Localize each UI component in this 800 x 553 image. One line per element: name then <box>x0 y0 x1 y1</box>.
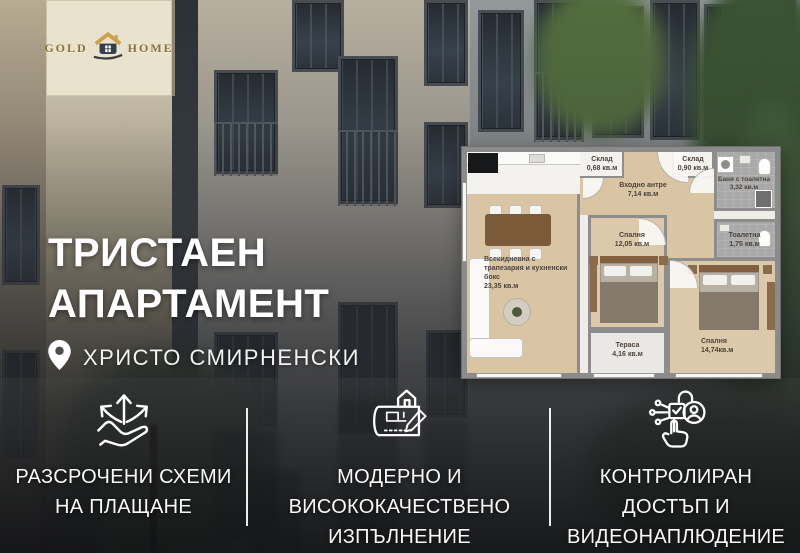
feature-quality-build: МОДЕРНО И ВИСОКОКАЧЕСТВЕНО ИЗПЪЛНЕНИЕ <box>247 384 552 552</box>
room-label-storage-2: Склад 0,90 кв.м <box>674 156 712 174</box>
dining-table <box>485 214 551 246</box>
nightstand <box>659 256 668 265</box>
room-label-toilet: Тоалетна 1,75 кв.м <box>717 232 772 250</box>
room-label-bathroom: Баня с тоалетна 3,32 кв.м <box>715 176 773 193</box>
feature-payment-plans: РАЗСРОЧЕНИ СХЕМИ НА ПЛАЩАНЕ <box>0 384 247 552</box>
floor-plan-interior: Всекидневна с трапезария и кухненски бок… <box>467 152 775 373</box>
hand-arrows-icon <box>88 384 160 456</box>
pillow <box>731 275 755 285</box>
poster: GOLD HOME ТРИСТАЕН АПАРТАМЕНТ <box>0 0 800 553</box>
page-title-line1: ТРИСТАЕН <box>48 228 360 279</box>
pillow <box>630 266 652 276</box>
pillow <box>604 266 626 276</box>
hero-title-block: ТРИСТАЕН АПАРТАМЕНТ ХРИСТО СМИРНЕНСКИ <box>48 228 360 375</box>
room-label-storage-1: Склад 0,68 кв.м <box>582 156 622 174</box>
access-control-icon <box>640 384 712 456</box>
window-strip <box>476 373 562 378</box>
blanket <box>600 282 658 323</box>
room-label-living: Всекидневна с трапезария и кухненски бок… <box>484 256 576 292</box>
blueprint-pencil-icon <box>364 384 436 456</box>
room-label-terrace: Тераса 4,16 кв.м <box>605 342 650 360</box>
floor-plan: Всекидневна с трапезария и кухненски бок… <box>462 147 780 378</box>
hall-corridor <box>667 215 714 258</box>
room-label-bedroom-2: Спалня 14,74кв.м <box>701 338 756 356</box>
sink-fixture <box>719 224 730 232</box>
feature-divider <box>549 408 551 526</box>
gold-home-house-icon <box>92 31 124 65</box>
shower <box>755 190 772 208</box>
room-label-bedroom-1: Спалня 12,05 кв.м <box>607 232 657 250</box>
cooktop <box>468 153 498 173</box>
location-row: ХРИСТО СМИРНЕНСКИ <box>48 340 360 375</box>
toilet-fixture <box>758 158 771 175</box>
bed-headboard <box>600 256 658 263</box>
feature-divider <box>246 408 248 526</box>
window-strip <box>462 182 467 262</box>
sink-fixture <box>739 155 751 164</box>
sofa <box>469 338 523 358</box>
window-strip <box>675 373 763 378</box>
brand-word-gold: GOLD <box>44 41 87 56</box>
feature-label: КОНТРОЛИРАН ДОСТЪП И ВИДЕОНАПЛЮДЕНИЕ <box>567 462 785 552</box>
feature-label: МОДЕРНО И ВИСОКОКАЧЕСТВЕНО ИЗПЪЛНЕНИЕ <box>289 462 511 552</box>
blanket <box>699 292 759 330</box>
wardrobe <box>767 282 775 330</box>
brand-word-home: HOME <box>128 41 174 56</box>
feature-label: РАЗСРОЧЕНИ СХЕМИ НА ПЛАЩАНЕ <box>15 462 231 522</box>
features-row: РАЗСРОЧЕНИ СХЕМИ НА ПЛАЩАНЕ МОДЕРНО И ВИ… <box>0 384 800 552</box>
feature-access-control: КОНТРОЛИРАН ДОСТЪП И ВИДЕОНАПЛЮДЕНИЕ <box>552 384 800 552</box>
page-title-line2: АПАРТАМЕНТ <box>48 279 360 330</box>
bed-headboard <box>699 265 759 272</box>
location-label: ХРИСТО СМИРНЕНСКИ <box>83 345 360 371</box>
wardrobe <box>590 262 597 312</box>
pillow <box>703 275 727 285</box>
nightstand <box>589 256 598 265</box>
room-label-entrance: Входно антре 7,14 кв.м <box>613 182 673 200</box>
location-pin-icon <box>48 340 71 375</box>
washer-drum <box>721 160 730 169</box>
brand-logo: GOLD HOME <box>46 0 175 96</box>
kitchen-sink <box>529 154 545 163</box>
window-strip <box>593 373 655 378</box>
nightstand <box>763 265 772 274</box>
plant <box>512 307 522 317</box>
